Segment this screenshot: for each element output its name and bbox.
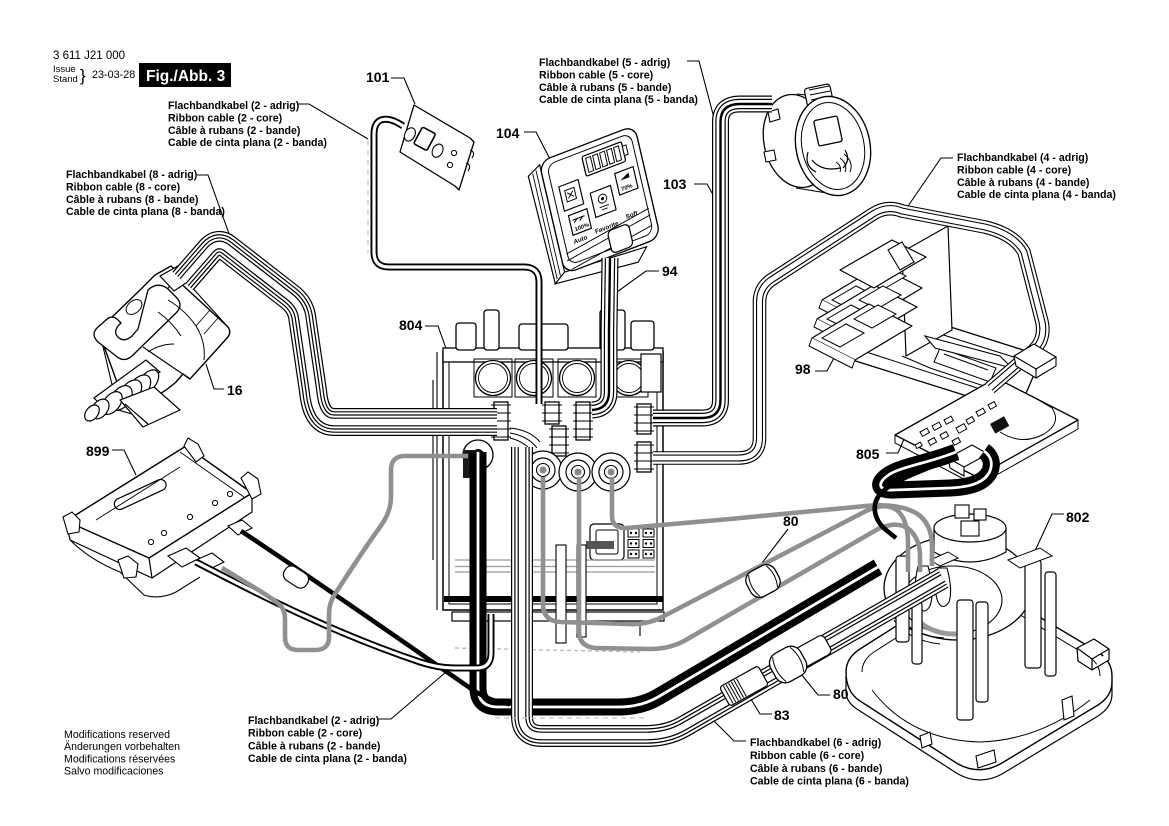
svg-text:Câble à rubans (4 - bande): Câble à rubans (4 - bande) <box>957 177 1089 189</box>
svg-text:Flachbandkabel (2 - adrig): Flachbandkabel (2 - adrig) <box>248 715 379 727</box>
svg-text:Ribbon cable (2 - core): Ribbon cable (2 - core) <box>168 112 282 124</box>
svg-text:83: 83 <box>774 707 790 723</box>
svg-text:}: } <box>80 66 86 85</box>
svg-text:94: 94 <box>662 263 678 279</box>
svg-text:Ribbon cable (2 - core): Ribbon cable (2 - core) <box>248 728 362 740</box>
svg-text:Cable de cinta plana (4 - band: Cable de cinta plana (4 - banda) <box>957 189 1116 201</box>
svg-text:Cable de cinta plana (2 - band: Cable de cinta plana (2 - banda) <box>168 137 327 149</box>
svg-text:98: 98 <box>795 361 811 377</box>
svg-text:Ribbon cable (5 - core): Ribbon cable (5 - core) <box>539 69 653 81</box>
svg-text:Ribbon cable (6 - core): Ribbon cable (6 - core) <box>750 750 864 762</box>
svg-text:Flachbandkabel (6 - adrig): Flachbandkabel (6 - adrig) <box>750 737 881 749</box>
svg-text:3 611 J21 000: 3 611 J21 000 <box>53 50 125 62</box>
svg-text:Câble à rubans (2 - bande): Câble à rubans (2 - bande) <box>248 740 380 752</box>
svg-text:16: 16 <box>227 382 243 398</box>
svg-text:804: 804 <box>399 317 423 333</box>
svg-text:Flachbandkabel (2 - adrig): Flachbandkabel (2 - adrig) <box>168 100 299 112</box>
svg-text:Cable de cinta plana (6 - band: Cable de cinta plana (6 - banda) <box>750 776 909 788</box>
svg-text:Flachbandkabel (8 - adrig): Flachbandkabel (8 - adrig) <box>66 169 197 181</box>
svg-text:Stand: Stand <box>53 74 78 85</box>
svg-text:Salvo modificaciones: Salvo modificaciones <box>64 766 164 778</box>
svg-text:23-03-28: 23-03-28 <box>92 69 135 81</box>
svg-text:Cable de cinta plana (2 - band: Cable de cinta plana (2 - banda) <box>248 753 407 765</box>
svg-text:104: 104 <box>496 125 520 141</box>
svg-text:Cable de cinta plana (8 - band: Cable de cinta plana (8 - banda) <box>66 206 225 218</box>
svg-text:Modifications reserved: Modifications reserved <box>64 729 170 741</box>
svg-text:Ribbon cable (4 - core): Ribbon cable (4 - core) <box>957 164 1071 176</box>
svg-text:Câble à rubans (8 - bande): Câble à rubans (8 - bande) <box>66 194 198 206</box>
svg-text:Flachbandkabel (5 - adrig): Flachbandkabel (5 - adrig) <box>539 57 670 69</box>
svg-text:802: 802 <box>1066 509 1090 525</box>
svg-text:101: 101 <box>366 69 390 85</box>
svg-text:103: 103 <box>663 176 687 192</box>
svg-text:Flachbandkabel (4 - adrig): Flachbandkabel (4 - adrig) <box>957 152 1088 164</box>
svg-text:Cable de cinta plana (5 - band: Cable de cinta plana (5 - banda) <box>539 94 698 106</box>
svg-text:Câble à rubans (2 - bande): Câble à rubans (2 - bande) <box>168 125 300 137</box>
svg-text:Änderungen vorbehalten: Änderungen vorbehalten <box>64 741 180 753</box>
svg-text:Fig./Abb. 3: Fig./Abb. 3 <box>146 68 226 85</box>
svg-text:Câble à rubans (6 - bande): Câble à rubans (6 - bande) <box>750 763 882 775</box>
svg-text:805: 805 <box>856 446 880 462</box>
svg-text:899: 899 <box>86 443 110 459</box>
svg-text:Câble à rubans (5 - bande): Câble à rubans (5 - bande) <box>539 82 671 94</box>
svg-text:Modifications réservées: Modifications réservées <box>64 753 175 765</box>
svg-text:Ribbon cable (8 - core): Ribbon cable (8 - core) <box>66 181 180 193</box>
